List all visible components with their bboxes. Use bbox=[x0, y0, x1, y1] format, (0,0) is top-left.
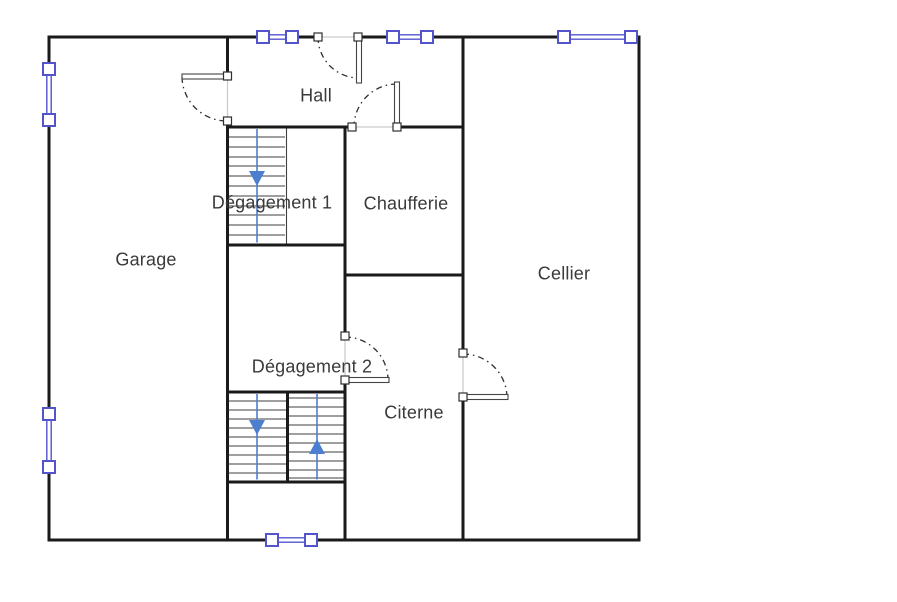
room-label-citerne: Citerne bbox=[384, 403, 443, 424]
room-label-degagement-2: Dégagement 2 bbox=[252, 357, 372, 378]
floor-plan-canvas: Garage Hall Dégagement 1 Chaufferie Cell… bbox=[0, 0, 897, 602]
staircase-lower bbox=[229, 392, 344, 482]
staircase-upper bbox=[229, 129, 287, 244]
room-label-degagement-1: Dégagement 1 bbox=[212, 193, 332, 214]
door-icon bbox=[314, 33, 362, 83]
door-icon bbox=[459, 349, 508, 401]
room-label-cellier: Cellier bbox=[538, 264, 590, 285]
window-icon bbox=[266, 534, 317, 546]
room-label-hall: Hall bbox=[300, 86, 332, 107]
window-icon bbox=[257, 31, 298, 43]
window-icon bbox=[43, 408, 55, 473]
room-label-chaufferie: Chaufferie bbox=[364, 194, 449, 215]
window-icon bbox=[387, 31, 433, 43]
interior-walls bbox=[226, 36, 465, 542]
floor-plan-drawing bbox=[0, 0, 897, 602]
door-icon bbox=[182, 72, 232, 125]
window-icon bbox=[558, 31, 637, 43]
window-icon bbox=[43, 63, 55, 126]
room-label-garage: Garage bbox=[115, 250, 176, 271]
door-icon bbox=[348, 82, 401, 131]
